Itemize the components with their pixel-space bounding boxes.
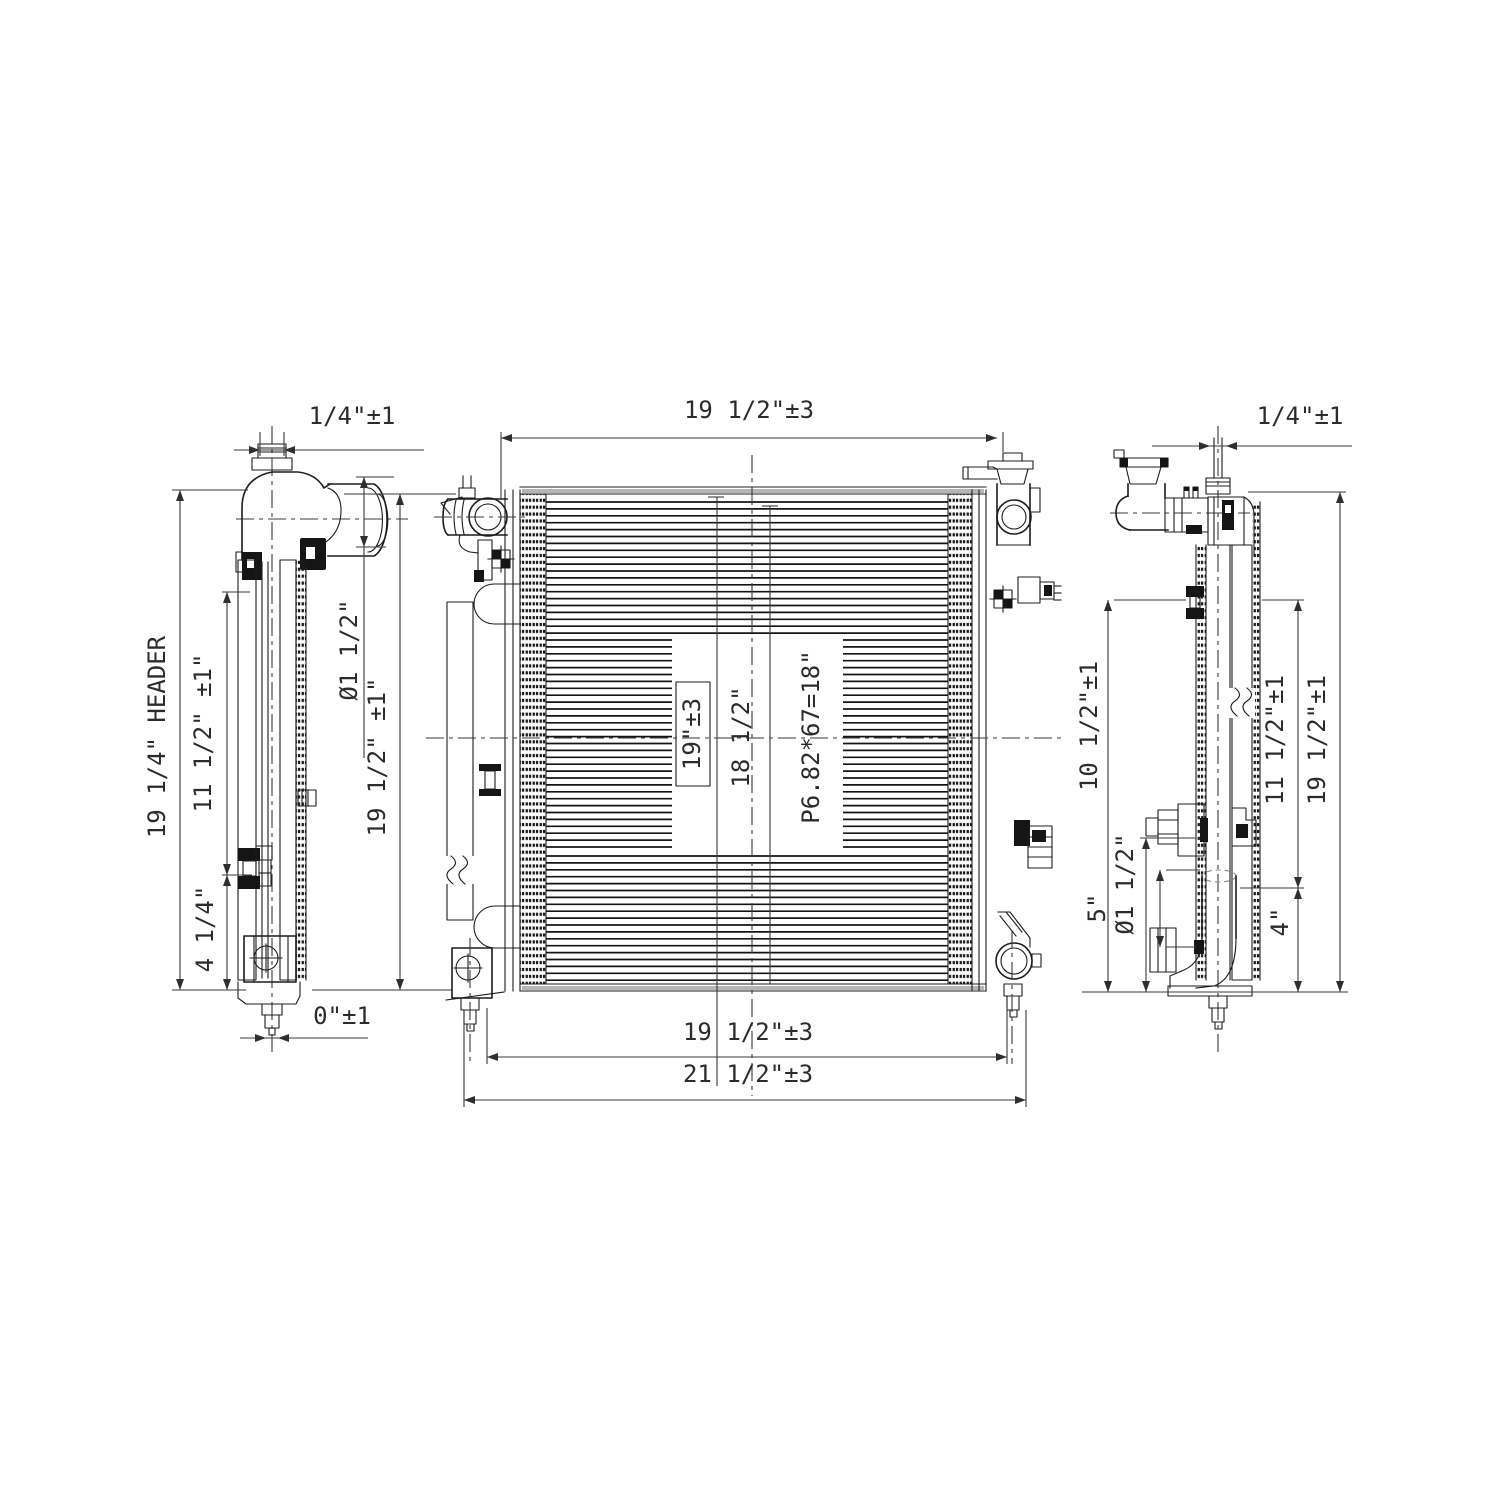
right-side-view: 1/4"±1 19 1/2"±1 10 1/2"±1 5" Ø1 1/2" 11…	[1075, 402, 1352, 1056]
dim-right-left-upper-span: 10 1/2"±1	[1075, 661, 1103, 791]
dim-bottom-width: 19 1/2"±3	[683, 1018, 813, 1046]
dim-left-lower-span: 4 1/4"	[191, 886, 219, 973]
dim-left-bottom-offset: 0"±1	[313, 1002, 371, 1030]
radiator-technical-drawing: 1/4"±1 19 1/4" HEADER 11 1/2" ±1" 4 1/4"…	[0, 0, 1500, 1500]
dim-left-top-offset: 1/4"±1	[309, 402, 396, 430]
front-left-tank	[434, 476, 530, 1066]
inlet-pipe	[434, 498, 530, 536]
reservoir-cap	[1114, 450, 1168, 484]
left-side-tank	[238, 560, 316, 980]
dim-left-overall-height: 19 1/2" ±1"	[363, 678, 391, 837]
side-bracket-hatched	[445, 602, 475, 920]
outlet-flange	[996, 912, 1041, 979]
dim-right-top-offset: 1/4"±1	[1257, 402, 1344, 430]
dim-right-overall-height: 19 1/2"±1	[1303, 675, 1331, 805]
upper-connector	[1018, 577, 1061, 603]
dim-fin-spec: P6.82*67=18"	[797, 650, 825, 823]
screw-right	[990, 586, 1016, 612]
left-inlet-elbow	[236, 472, 388, 580]
dim-left-inlet-diameter: Ø1 1/2"	[335, 599, 363, 700]
right-view-part	[1110, 426, 1260, 1056]
front-right-tank	[963, 432, 1061, 1064]
left-side-view: 1/4"±1 19 1/4" HEADER 11 1/2" ±1" 4 1/4"…	[143, 402, 456, 1056]
lower-connector	[1014, 820, 1052, 868]
clip-left	[479, 764, 501, 796]
left-mounting-clip	[238, 846, 272, 889]
filler-neck	[963, 432, 1040, 545]
dim-overall-width: 21 1/2"±3	[683, 1060, 813, 1088]
dim-right-right-upper-span: 11 1/2"±1	[1261, 675, 1289, 805]
dim-top-width: 19 1/2"±3	[684, 396, 814, 424]
dim-right-outlet-diameter: Ø1 1/2"	[1111, 833, 1139, 934]
dim-core-width-boxed: 19"±3	[678, 698, 706, 770]
dim-right-left-lower-span: 5"	[1083, 894, 1111, 923]
screw-left	[488, 546, 514, 572]
right-view-dimensions: 1/4"±1 19 1/2"±1 10 1/2"±1 5" Ø1 1/2" 11…	[1075, 402, 1352, 992]
mounting-foot-left	[446, 938, 504, 1066]
dim-right-right-lower-span: 4"	[1266, 908, 1294, 937]
drawing-sheet: 1/4"±1 19 1/4" HEADER 11 1/2" ±1" 4 1/4"…	[0, 0, 1500, 1500]
dim-left-header-height: 19 1/4" HEADER	[143, 635, 171, 838]
dim-tank-span: 18 1/2"	[727, 686, 755, 787]
right-side-tank	[1196, 502, 1260, 980]
front-view: 19"±3 18 1/2" P6.82*67=18" 19 1/2"±3 19 …	[426, 396, 1066, 1107]
dim-left-upper-span: 11 1/2" ±1"	[189, 654, 217, 813]
left-drain-foot	[238, 936, 300, 1035]
